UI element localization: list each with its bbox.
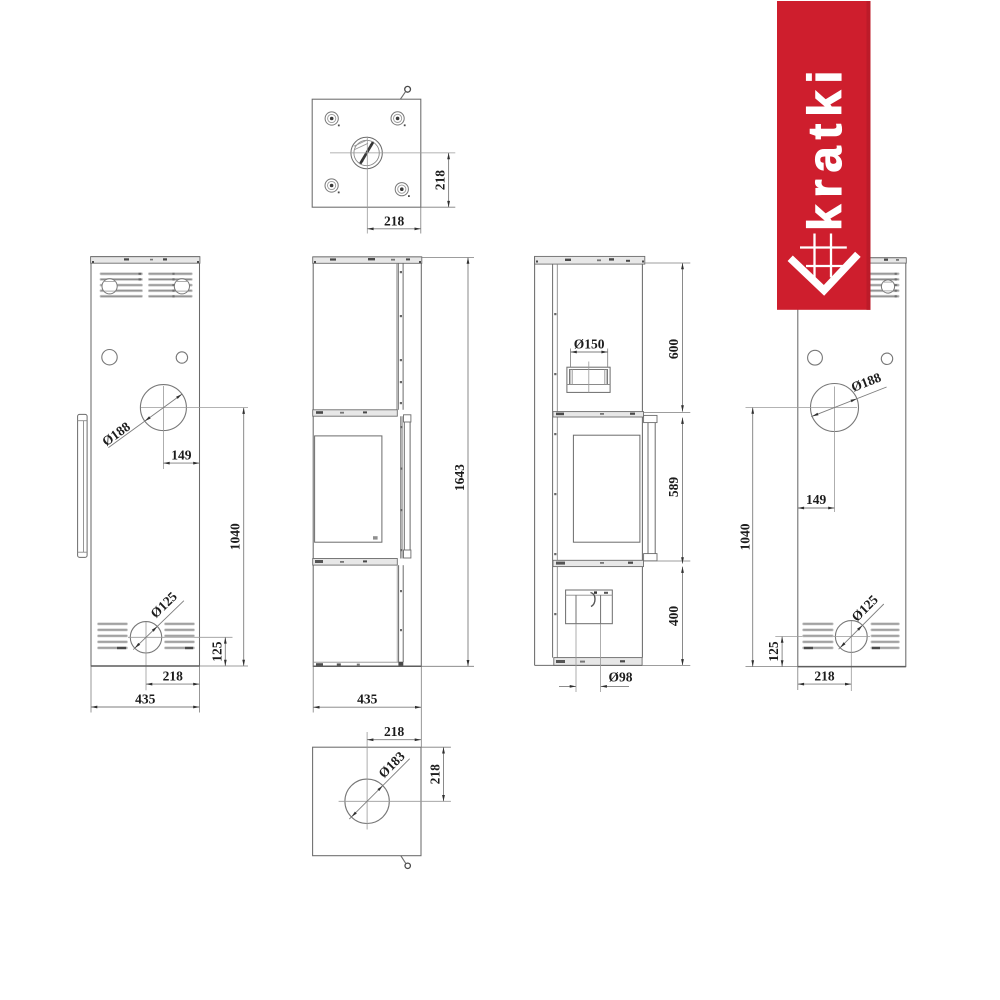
svg-text:218: 218 xyxy=(814,669,835,684)
svg-text:149: 149 xyxy=(171,448,192,463)
svg-text:1040: 1040 xyxy=(738,523,753,550)
svg-text:Ø183: Ø183 xyxy=(375,748,408,781)
svg-text:218: 218 xyxy=(163,669,184,684)
svg-text:125: 125 xyxy=(209,641,224,662)
svg-text:Ø150: Ø150 xyxy=(574,337,605,352)
svg-text:435: 435 xyxy=(135,692,156,707)
svg-text:Ø125: Ø125 xyxy=(147,589,180,621)
svg-text:589: 589 xyxy=(666,477,681,498)
svg-text:125: 125 xyxy=(766,641,781,662)
svg-text:435: 435 xyxy=(357,692,378,707)
svg-text:600: 600 xyxy=(666,339,681,360)
svg-text:218: 218 xyxy=(384,213,405,228)
svg-text:218: 218 xyxy=(384,724,405,739)
svg-text:Ø98: Ø98 xyxy=(608,670,632,685)
svg-text:400: 400 xyxy=(666,606,681,627)
svg-text:149: 149 xyxy=(806,492,827,507)
svg-text:Ø125: Ø125 xyxy=(849,592,882,625)
svg-text:218: 218 xyxy=(433,170,448,191)
svg-text:Ø188: Ø188 xyxy=(849,369,883,394)
svg-text:218: 218 xyxy=(428,764,443,785)
svg-text:kratki: kratki xyxy=(798,63,851,230)
svg-text:Ø188: Ø188 xyxy=(99,419,133,449)
svg-text:1040: 1040 xyxy=(228,523,243,550)
svg-text:1643: 1643 xyxy=(452,464,467,491)
